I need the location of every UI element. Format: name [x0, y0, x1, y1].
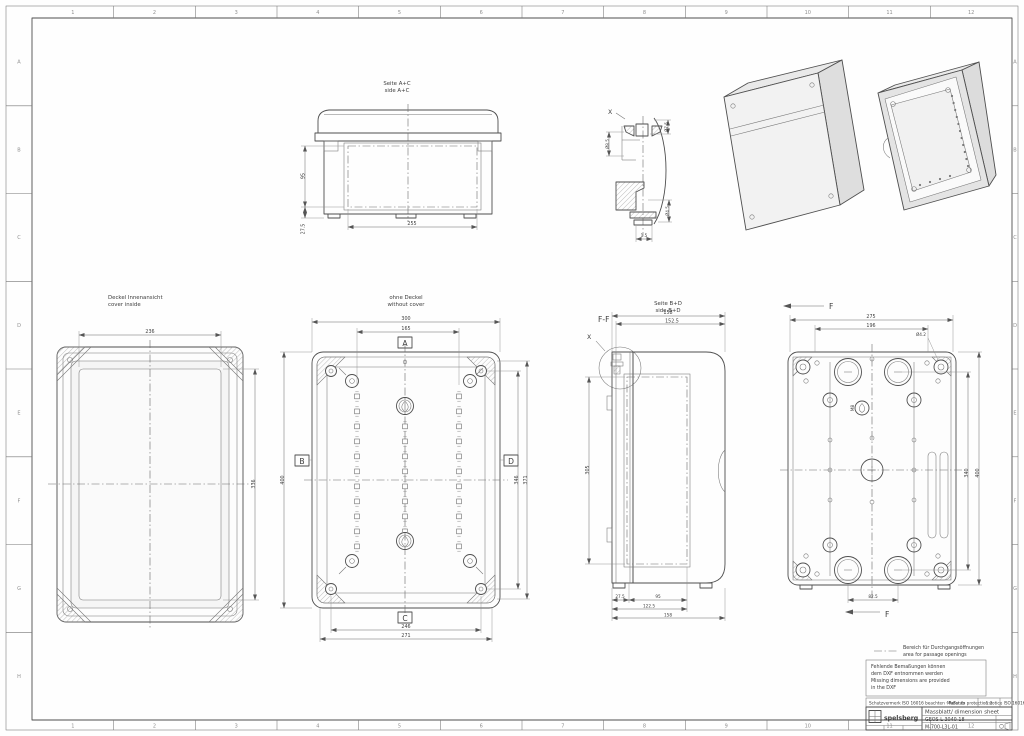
row-label: G	[1013, 586, 1017, 592]
view-side-ac: Seite A+C side A+C 95 27.5 255	[301, 81, 502, 234]
dim-text: 122.5	[643, 604, 655, 609]
col-label: 4	[316, 724, 319, 730]
col-label: 12	[968, 10, 974, 16]
col-label: 12	[968, 724, 974, 730]
dim-text: 82.5	[868, 594, 878, 599]
view-label-de: ohne Deckel	[389, 295, 422, 301]
brand-name: spelsberg	[884, 715, 918, 722]
col-label: 4	[316, 10, 319, 16]
drawing-number: M-700-L3L-01	[925, 725, 958, 731]
row-label: F	[1014, 499, 1017, 505]
dim-text: 300	[401, 316, 410, 322]
dim-text: 1.5	[641, 233, 648, 238]
view-without-cover: ohne Deckel without cover A C B D	[280, 295, 530, 642]
dim-text: 95	[301, 173, 307, 179]
row-label: E	[17, 411, 20, 417]
dim-text: 152.5	[665, 319, 679, 325]
dim-text: 246	[401, 624, 410, 630]
col-label: 2	[153, 724, 156, 730]
hole-dim-text: Ø4.2	[916, 332, 926, 337]
dim-text: Ø8.5	[605, 139, 610, 149]
view-direction-label: F	[829, 302, 833, 311]
notes-box: Fehlende Bemaßungen können dem DXF entno…	[866, 660, 986, 696]
knockout-column	[354, 390, 360, 556]
dim-text: 196	[866, 323, 875, 329]
dim-text: 165	[401, 326, 410, 332]
legend-text-de: Bereich für Durchgangsöffnungen	[903, 645, 984, 651]
side-bd-dims: 158 152.5 305 27.5 95 122.5 158	[585, 310, 725, 621]
row-label: A	[17, 60, 21, 66]
detail-label: X	[608, 109, 613, 116]
view-detail-x: X Ø7.5 Ø8.5 Ø4.5 1.5	[605, 109, 672, 242]
dim-text: 305	[585, 465, 591, 474]
part-number: GEOS-L 3040-18	[925, 717, 965, 723]
detail-x-dims: Ø7.5 Ø8.5 Ø4.5 1.5	[605, 120, 672, 242]
mark-a: A	[402, 339, 408, 348]
dim-text: 400	[975, 468, 981, 477]
dim-text: 371	[523, 475, 529, 484]
dim-text: Ø4.5	[665, 206, 670, 216]
dim-text: 271	[401, 633, 410, 639]
view-direction-label: F	[885, 610, 889, 619]
view-label-en: cover inside	[108, 302, 141, 308]
col-label: 1	[71, 724, 74, 730]
dim-text: 158	[664, 613, 672, 618]
row-label: A	[1013, 60, 1017, 66]
dim-text: 95	[655, 594, 661, 599]
row-label: B	[1013, 148, 1017, 154]
iso-view-closed	[724, 60, 864, 230]
dimension-sheet-svg: 1 2 3 4 5 6 7 8 9 10 11 12 1 2 3 4 5 6 7…	[0, 0, 1024, 736]
view-arrow-top: F	[783, 302, 833, 311]
dim-text: 158	[663, 310, 672, 316]
view-label-de: Seite A+C	[383, 81, 411, 87]
view-label-en: side A+C	[385, 88, 410, 94]
col-label: 8	[643, 724, 646, 730]
dim-text: 27.5	[301, 224, 307, 235]
dim-text: 340	[964, 468, 970, 477]
frame-col-labels-bottom: 1 2 3 4 5 6 7 8 9 10 11 12	[71, 724, 974, 730]
section-label: F-F	[598, 315, 609, 324]
legend-text-en: area for passage openings	[903, 652, 967, 658]
col-label: 11	[886, 724, 892, 730]
col-label: 6	[480, 724, 483, 730]
view-cover-inside: Deckel Innenansicht cover inside 236 336	[48, 295, 259, 630]
view-label-en: without cover	[388, 302, 426, 308]
col-label: 5	[398, 10, 401, 16]
mark-b: B	[299, 457, 304, 466]
mark-c: C	[402, 614, 407, 623]
scale-value: 1:2	[986, 701, 993, 706]
row-label: G	[17, 586, 21, 592]
row-label: D	[1013, 323, 1017, 329]
dim-text: 275	[866, 314, 875, 320]
dim-text: 400	[280, 475, 286, 484]
frame-col-labels-top: 1 2 3 4 5 6 7 8 9 10 11 12	[71, 10, 974, 16]
dim-text: 27.5	[615, 594, 625, 599]
row-label: B	[17, 148, 21, 154]
row-label: F	[18, 499, 21, 505]
view-label-de: Seite B+D	[654, 301, 682, 307]
dim-text: Ø7.5	[664, 122, 669, 132]
knockout-column	[402, 420, 408, 532]
doc-type: Massblatt/ dimension sheet	[925, 710, 999, 716]
scale-label: Maßstab	[947, 701, 965, 706]
dim-text: 336	[251, 479, 257, 488]
drawing-sheet: 1 2 3 4 5 6 7 8 9 10 11 12 1 2 3 4 5 6 7…	[0, 0, 1024, 736]
col-label: 3	[235, 724, 238, 730]
col-label: 10	[805, 724, 811, 730]
note-line: Fehlende Bemaßungen können	[871, 664, 945, 670]
legend: Bereich für Durchgangsöffnungen area for…	[874, 645, 984, 658]
dim-text: 255	[407, 221, 416, 227]
row-label: D	[17, 323, 21, 329]
col-label: 7	[561, 724, 564, 730]
view-side-bd: Seite B+D side B+D F-F X 158 152.5 305 2…	[585, 301, 725, 621]
col-label: 11	[886, 10, 892, 16]
thread-label: M8	[850, 405, 855, 412]
projection-symbol-icon	[1000, 723, 1011, 731]
knockout-column	[456, 390, 462, 556]
note-line: Missing dimensions are provided	[871, 678, 950, 684]
title-block: Schutzvermerk ISO 16016 beachten · Refer…	[866, 698, 1024, 731]
col-label: 10	[805, 10, 811, 16]
col-label: 2	[153, 10, 156, 16]
row-label: E	[1013, 411, 1016, 417]
dim-text: 236	[145, 329, 154, 335]
side-ac-dims: 95 27.5 255	[301, 146, 478, 234]
col-label: 7	[561, 10, 564, 16]
row-label: H	[17, 674, 21, 680]
row-label: C	[17, 235, 21, 241]
col-label: 3	[235, 10, 238, 16]
view-label-de: Deckel Innenansicht	[108, 295, 163, 301]
col-label: 9	[725, 724, 728, 730]
dim-text: 346	[514, 475, 520, 484]
mark-d: D	[508, 457, 514, 466]
view-back: F M8	[780, 302, 982, 619]
col-label: 8	[643, 10, 646, 16]
col-label: 9	[725, 10, 728, 16]
row-label: C	[1013, 235, 1017, 241]
col-label: 6	[480, 10, 483, 16]
view-arrow-bottom: F	[845, 610, 889, 620]
note-line: in the DXF	[871, 685, 896, 691]
detail-ref-label: X	[587, 334, 592, 341]
note-line: dem DXF entnommen werden	[871, 671, 943, 677]
row-label: H	[1013, 674, 1017, 680]
iso-view-open	[878, 62, 996, 210]
col-label: 1	[71, 10, 74, 16]
col-label: 5	[398, 724, 401, 730]
